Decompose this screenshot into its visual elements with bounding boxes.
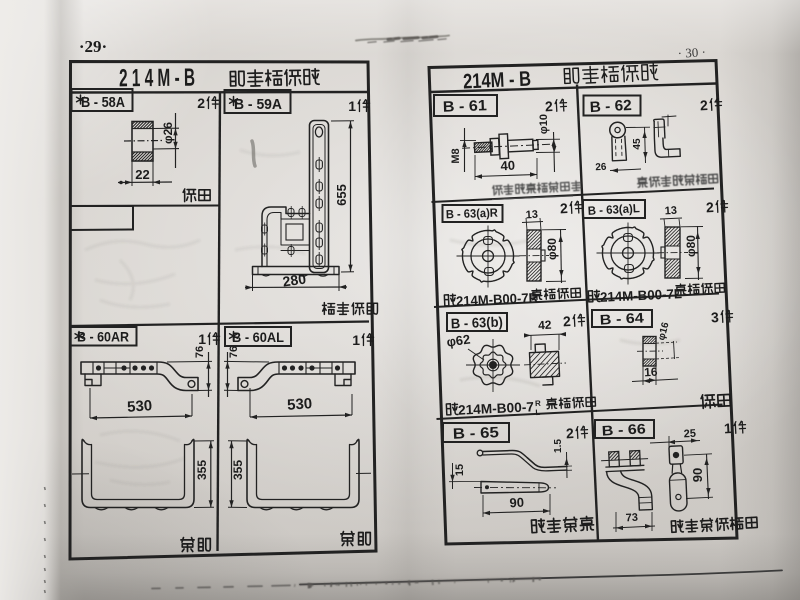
svg-text:2: 2 bbox=[566, 425, 575, 441]
svg-text:655: 655 bbox=[334, 184, 349, 206]
svg-text:B - 63(a)L: B - 63(a)L bbox=[587, 201, 640, 218]
svg-text:M8: M8 bbox=[450, 148, 462, 163]
svg-text:2: 2 bbox=[197, 95, 205, 111]
svg-text:φ62: φ62 bbox=[446, 331, 472, 349]
svg-text:B - 61: B - 61 bbox=[443, 97, 488, 116]
svg-text:φ80: φ80 bbox=[545, 238, 559, 260]
svg-text:B - 66: B - 66 bbox=[601, 420, 646, 438]
svg-text:2: 2 bbox=[563, 313, 572, 329]
svg-text:530: 530 bbox=[287, 395, 313, 414]
svg-text:15: 15 bbox=[454, 464, 466, 476]
svg-text:73: 73 bbox=[625, 512, 638, 525]
svg-text:530: 530 bbox=[127, 397, 153, 416]
svg-text:2: 2 bbox=[560, 200, 569, 216]
svg-text:φ26: φ26 bbox=[161, 122, 175, 144]
svg-text:B - 60AL: B - 60AL bbox=[232, 329, 284, 345]
svg-text:1: 1 bbox=[352, 332, 360, 348]
svg-text:2: 2 bbox=[545, 98, 554, 114]
svg-text:B - 62: B - 62 bbox=[589, 97, 632, 116]
svg-text:45: 45 bbox=[632, 138, 643, 150]
svg-text:B - 58A: B - 58A bbox=[81, 94, 125, 111]
svg-text:13: 13 bbox=[664, 205, 677, 218]
svg-text:1: 1 bbox=[348, 98, 356, 114]
svg-text:2: 2 bbox=[706, 199, 715, 215]
svg-text:B - 64: B - 64 bbox=[599, 309, 644, 327]
svg-text:22: 22 bbox=[135, 167, 149, 182]
svg-text:B - 63(b): B - 63(b) bbox=[451, 314, 504, 332]
svg-text:90: 90 bbox=[509, 495, 524, 511]
svg-text:1.5: 1.5 bbox=[553, 439, 564, 453]
svg-text:214M - B: 214M - B bbox=[463, 68, 532, 94]
svg-text:90: 90 bbox=[690, 468, 705, 482]
svg-text:13: 13 bbox=[525, 209, 538, 222]
svg-text:2: 2 bbox=[700, 97, 709, 113]
svg-text:355: 355 bbox=[195, 460, 209, 480]
svg-text:B - 59A: B - 59A bbox=[234, 96, 282, 113]
svg-text:R: R bbox=[535, 399, 541, 408]
svg-text:B - 60AR: B - 60AR bbox=[77, 329, 129, 345]
svg-text:·29·: ·29· bbox=[79, 37, 107, 56]
svg-text:· 30 ·: · 30 · bbox=[677, 44, 706, 60]
svg-text:B - 63(a)R: B - 63(a)R bbox=[446, 206, 499, 222]
svg-text:1: 1 bbox=[724, 420, 733, 436]
svg-text:76: 76 bbox=[194, 346, 206, 358]
svg-text:L: L bbox=[535, 408, 540, 417]
svg-text:214M-B00-7L: 214M-B00-7L bbox=[600, 286, 683, 305]
svg-text:1: 1 bbox=[198, 331, 206, 347]
svg-text:355: 355 bbox=[231, 460, 245, 480]
svg-text:76: 76 bbox=[228, 346, 240, 358]
svg-text:φ16: φ16 bbox=[656, 321, 671, 342]
svg-text:26: 26 bbox=[595, 162, 607, 174]
svg-text:φ10: φ10 bbox=[538, 114, 550, 134]
svg-text:42: 42 bbox=[538, 318, 552, 333]
svg-text:40: 40 bbox=[500, 158, 515, 174]
svg-text:3: 3 bbox=[711, 309, 720, 325]
svg-text:B - 65: B - 65 bbox=[453, 424, 500, 443]
svg-text:280: 280 bbox=[282, 270, 308, 289]
svg-text:214M-B00-7R: 214M-B00-7R bbox=[456, 290, 539, 309]
svg-text:25: 25 bbox=[683, 428, 696, 441]
